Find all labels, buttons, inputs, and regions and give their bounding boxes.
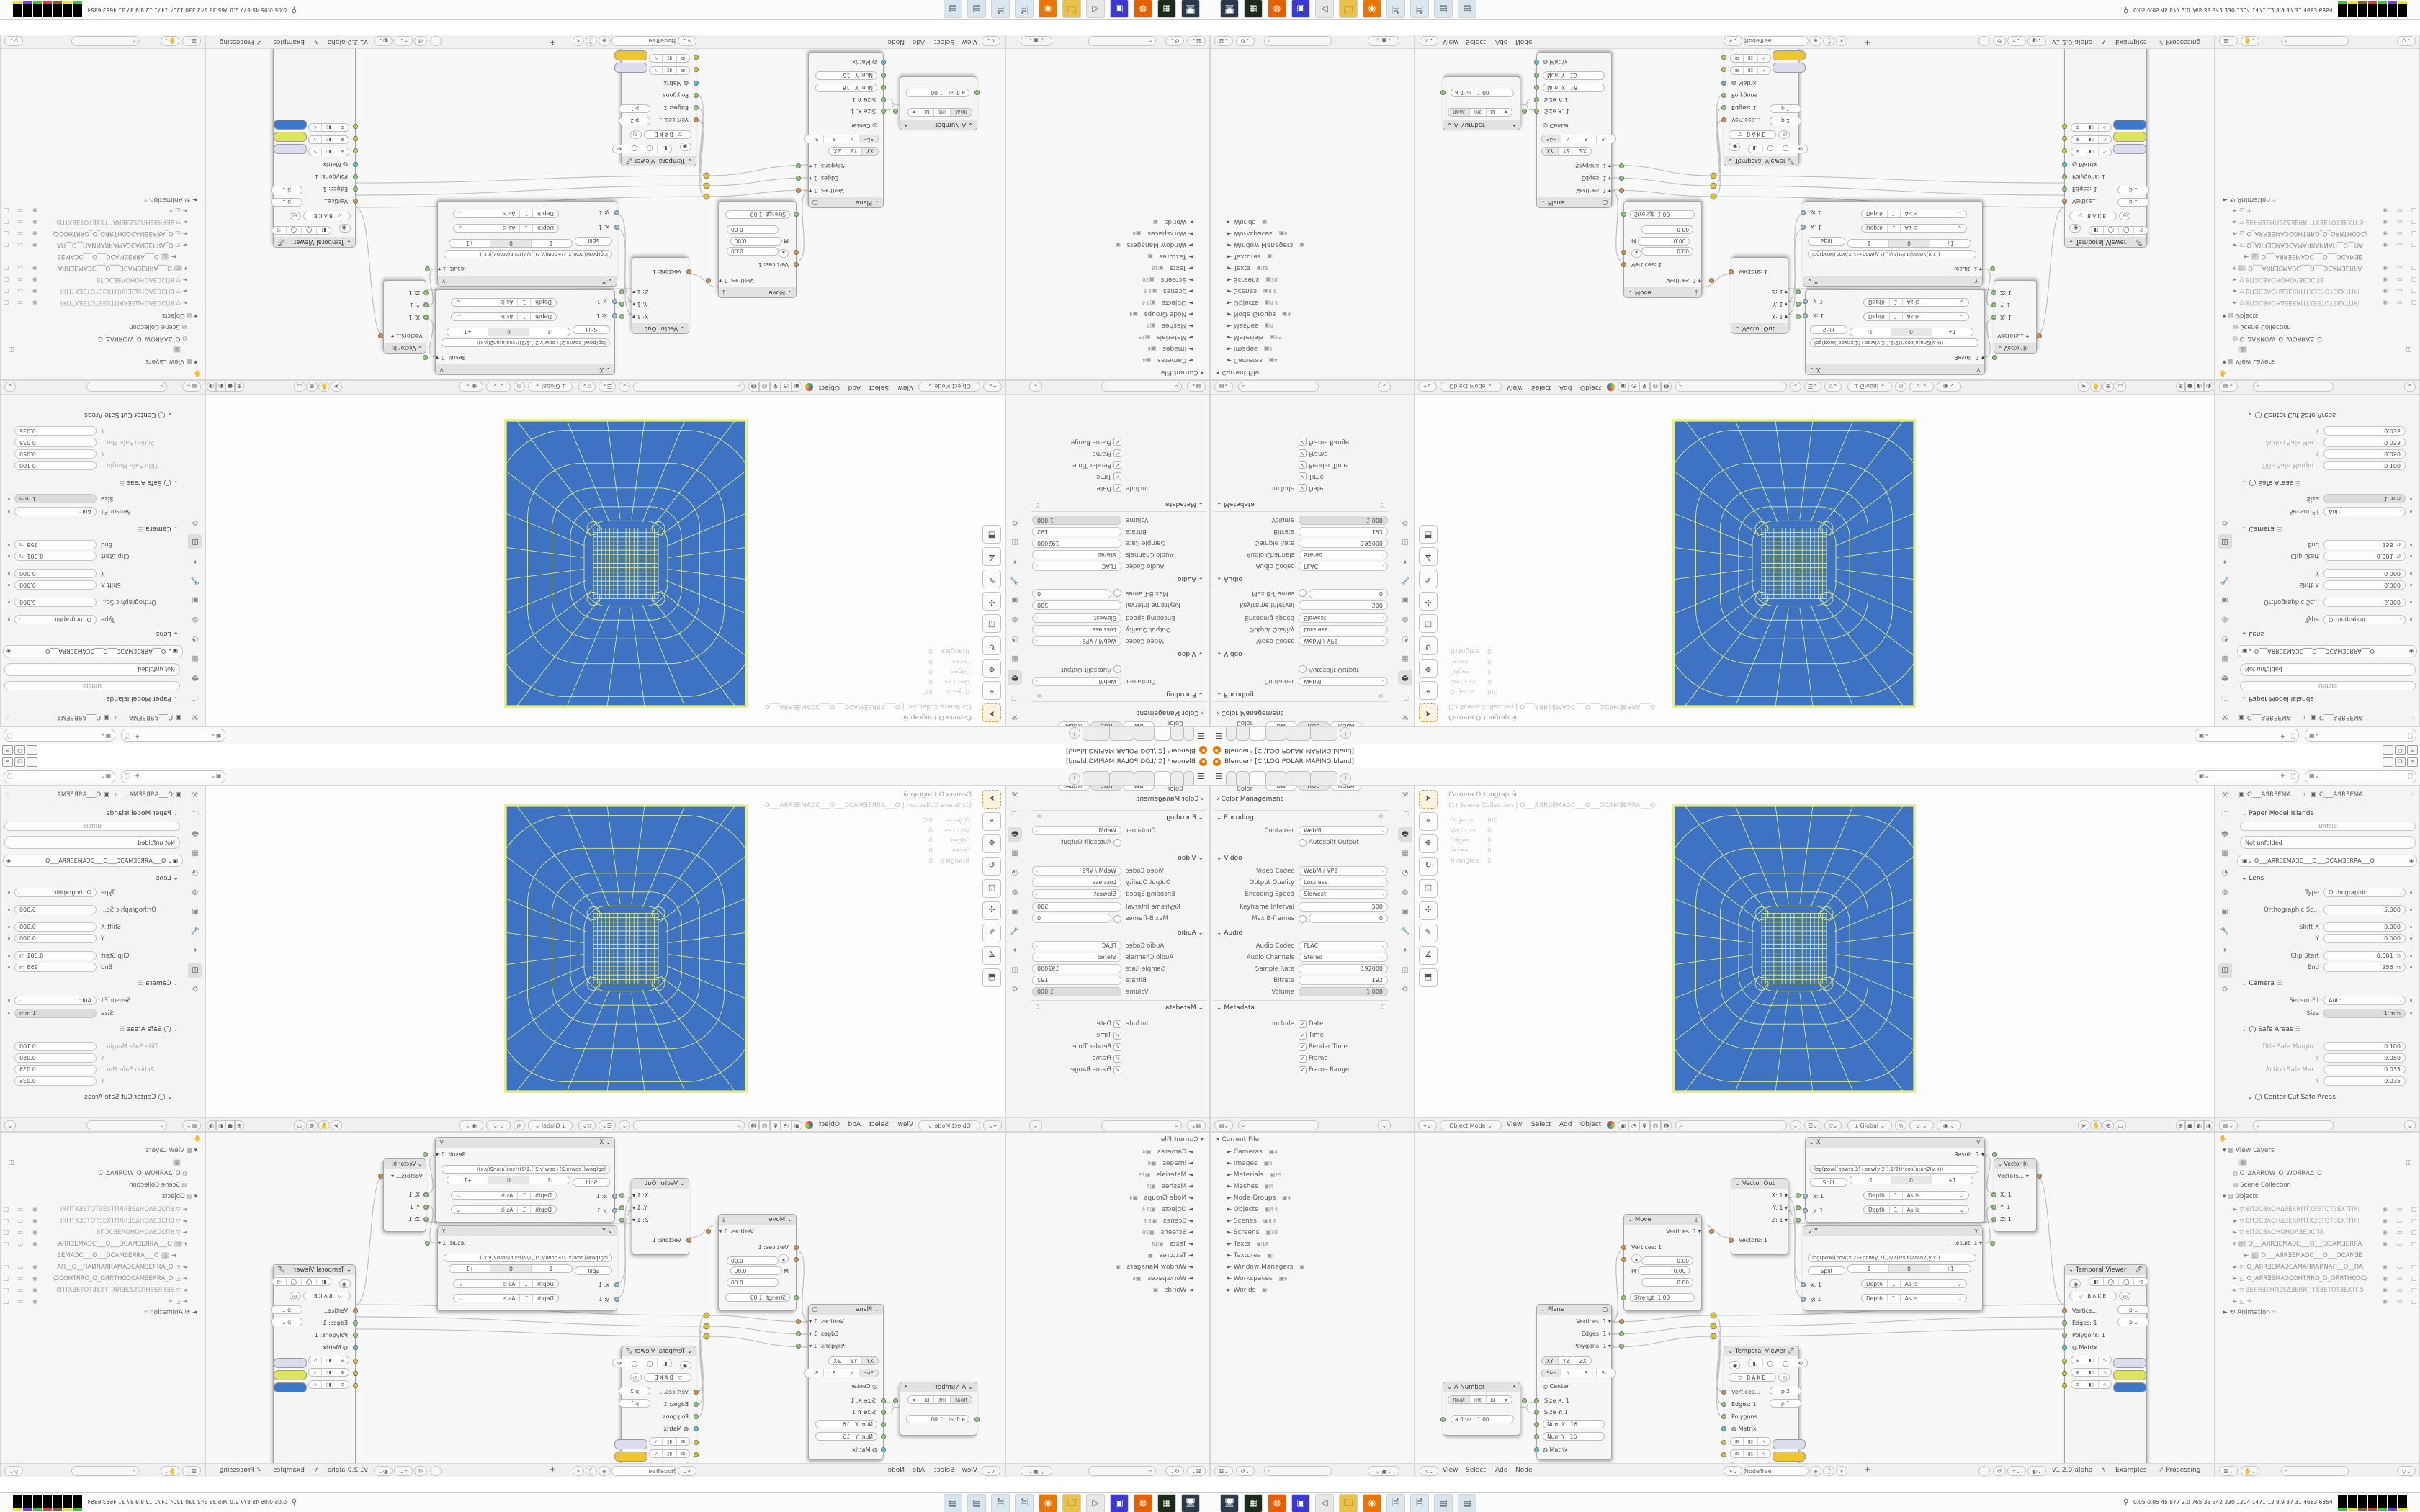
grid-icon[interactable]: ⊞: [336, 148, 349, 156]
grid-icon[interactable]: ⊞: [1731, 66, 1744, 74]
swatch-socket[interactable]: [2062, 136, 2067, 141]
safe-row-3-field[interactable]: 0.035: [2323, 426, 2406, 436]
reroute-node[interactable]: [704, 1323, 709, 1329]
disable-render-icon[interactable]: ◫: [2411, 1218, 2417, 1224]
disable-render-icon[interactable]: ◫: [3, 265, 9, 271]
disable-viewport-icon[interactable]: ▭: [2397, 1206, 2403, 1212]
viewport-chevron-icon[interactable]: ⌄: [1790, 1120, 1801, 1130]
taskbar-vice-c64-icon[interactable]: ▣: [1110, 1494, 1129, 1512]
camera-button[interactable]: ◎: [630, 130, 642, 139]
close-button[interactable]: ✕: [2, 745, 13, 755]
panel-encoding[interactable]: ⌄ Encoding: [1166, 814, 1204, 822]
outliner-object-row[interactable]: ► ◫ O_AЯRƎEMAƆCAMAЯRAИNAΠ__O__ΠA◉▭◫: [2233, 241, 2363, 248]
color-swatch[interactable]: [614, 1439, 647, 1449]
shading-solid-icon[interactable]: ●: [2185, 1120, 2195, 1130]
video-0-field[interactable]: WebM / VP9⌄: [1299, 636, 1388, 646]
editor-type-node-icon[interactable]: ∿⌄: [1420, 1466, 1438, 1476]
properties-tab-physics-icon[interactable]: ⚙: [1398, 515, 1412, 529]
viewport-menu-select[interactable]: Select: [869, 1121, 889, 1128]
new-view-layer-icon[interactable]: 🗋: [2408, 773, 2413, 783]
axis-yz-button[interactable]: YZ: [846, 1357, 862, 1365]
node-menu-node[interactable]: Node: [888, 1467, 905, 1474]
eye-toggle[interactable]: ◉: [339, 224, 351, 233]
node-x-expression[interactable]: ⌄ X ⋎ Result: 1 ▾ log(pow((pow(x,2)+pow(…: [435, 1137, 615, 1223]
fake-user-shield-icon[interactable]: ◈: [1810, 36, 1821, 46]
size-y-socket[interactable]: [881, 97, 886, 102]
bake-button[interactable]: ▽ BAKE: [2069, 212, 2117, 220]
grid-dropdown-icon[interactable]: ⌗⌄: [394, 36, 413, 46]
color-swatch[interactable]: [274, 145, 307, 155]
panel-safe-areas[interactable]: ⌄ ◯ Safe Areas ☰: [2241, 479, 2301, 486]
include-frame-checkbox[interactable]: ✓: [1299, 449, 1307, 457]
hide-eye-icon[interactable]: ◉: [32, 276, 37, 283]
select-box-tool[interactable]: ➤: [982, 790, 1001, 809]
hide-eye-icon[interactable]: ◉: [2383, 242, 2388, 248]
disable-viewport-icon[interactable]: ▭: [2397, 1229, 2403, 1236]
lens-row-5-field[interactable]: 256 m: [14, 540, 97, 549]
size-y-socket[interactable]: [1534, 1410, 1539, 1415]
vertices-output-socket[interactable]: [1619, 1319, 1624, 1324]
workspace-tab[interactable]: [1134, 771, 1155, 786]
workspace-tab[interactable]: [1134, 726, 1155, 741]
include-date-checkbox[interactable]: ✓: [1113, 1020, 1121, 1028]
int-button[interactable]: int: [933, 1396, 950, 1404]
file-outliner-item[interactable]: ► Window Managers ▣: [1227, 1264, 1305, 1271]
grid-icon[interactable]: ⊞: [2071, 135, 2084, 143]
presets-icon[interactable]: ☰: [1036, 690, 1042, 698]
swatch-socket[interactable]: [2062, 1359, 2067, 1364]
disable-render-icon[interactable]: ◫: [3, 1298, 9, 1305]
panel-paper-model[interactable]: ⌄ Paper Model Islands: [2241, 810, 2313, 817]
viewport-menu-object[interactable]: Object: [1580, 384, 1601, 391]
x-input-socket[interactable]: [1801, 1282, 1806, 1287]
lens-row-1-field[interactable]: 5.000: [2323, 905, 2406, 914]
matrix-input-socket[interactable]: [1721, 81, 1726, 86]
properties-tab-view-layer-icon[interactable]: ▦: [188, 651, 202, 665]
panel-metadata[interactable]: ⌄ Metadata: [1216, 1004, 1255, 1012]
view-layer-badge[interactable]: ▦◫: [2238, 1159, 2247, 1166]
panel-encoding[interactable]: ⌄ Encoding: [1166, 690, 1204, 698]
z-input-socket[interactable]: [1991, 290, 1996, 295]
measure-tool[interactable]: ∡: [982, 946, 1001, 965]
properties-tab-particles-icon[interactable]: ✦: [1398, 554, 1412, 568]
properties-tab-output-icon[interactable]: 🖶: [188, 670, 202, 685]
autosplit-checkbox[interactable]: [1113, 665, 1121, 673]
file-outliner-item[interactable]: ► Textures ▣: [1147, 253, 1193, 260]
x-input-socket[interactable]: [614, 1282, 619, 1287]
node-tree-name-field[interactable]: NodeTree: [611, 1466, 676, 1476]
y-output-socket[interactable]: [1796, 1205, 1801, 1210]
node-tree-name-field[interactable]: NodeTree: [611, 36, 676, 46]
node-vector-in[interactable]: ⌄ Vector In Vectors... ▾ X: 1 Y: 1 Z: 1: [383, 1158, 426, 1232]
overlay-toggle-icon[interactable]: ◔: [1628, 382, 1639, 392]
expression-field[interactable]: log(pow((pow(x,2)+pow(y,2)),1/2))*cos(at…: [1810, 338, 1978, 347]
color-swatch[interactable]: [274, 1370, 307, 1380]
gizmo-toggle-icon[interactable]: ⊕: [2102, 382, 2114, 392]
color-option-rgb[interactable]: RGB: [1298, 785, 1330, 791]
bake-button[interactable]: ▽ BAKE: [1729, 130, 1776, 139]
dropdown-icon[interactable]: ▾: [1500, 108, 1512, 116]
color-swatch[interactable]: [2113, 145, 2146, 155]
y-input-socket[interactable]: [1801, 210, 1806, 215]
node-header[interactable]: ⌄ Temporal Viewer 🖊: [2065, 237, 2146, 247]
outliner-object-row[interactable]: ► ◫ O_AЯRƎEMAƆCOHTЯRO_O_OЯRTHOƆC/◉▭◫: [53, 230, 187, 237]
outliner-object-row[interactable]: ► ▽ 8ΠƆCƎΛOHΔƎERRΠTXƎETOTƎEXTΠЯI◉▭◫: [60, 1218, 187, 1225]
taskbar-blender-icon[interactable]: ◉: [1039, 1494, 1057, 1512]
pin-icon[interactable]: ✈: [550, 1467, 555, 1474]
outliner-object-row[interactable]: ► ◫ O___AЯRƎEMAƆC___O___ƆCAMƎE: [58, 1252, 176, 1259]
axis-xy-button[interactable]: XY: [861, 1357, 878, 1365]
minimize-button[interactable]: –: [2383, 757, 2393, 767]
node-header[interactable]: ⌄ Temporal Viewer 🖊: [622, 1346, 696, 1356]
fake-user-shield-icon[interactable]: ◈: [599, 1466, 610, 1476]
polygons-input-socket[interactable]: [694, 93, 699, 98]
safe-row-0-field[interactable]: 0.100: [14, 1042, 97, 1051]
disable-viewport-icon[interactable]: ▭: [17, 219, 23, 225]
workspace-tab[interactable]: [1183, 726, 1194, 741]
editor-type-3d-icon[interactable]: ⌖⌄: [983, 1120, 1002, 1130]
disable-render-icon[interactable]: ◫: [3, 1264, 9, 1270]
vertices-input-socket[interactable]: [794, 1245, 799, 1250]
include-render-time-checkbox[interactable]: ✓: [1299, 461, 1307, 469]
file-outliner-item[interactable]: ► Workspaces ▣6: [1132, 1275, 1193, 1282]
safe-row-2-field[interactable]: 0.035: [14, 438, 97, 447]
loop-icon[interactable]: ⟲: [1793, 145, 1806, 153]
taskbar-notepad-icon[interactable]: 🗎: [1386, 0, 1405, 18]
taskbar-notepad-icon[interactable]: 🗎: [991, 1494, 1010, 1512]
processing-check[interactable]: ✓ Processing: [220, 38, 261, 45]
expression-field[interactable]: log(pow((pow(x,2)+pow(y,2)),1/2))*sin(at…: [444, 1254, 612, 1262]
properties-tab-object-icon[interactable]: ▣: [1008, 905, 1022, 919]
node-y-expression[interactable]: ⌄ Y ⋎ Result: 1 ▾ log(pow((pow(x,2)+pow(…: [437, 201, 617, 287]
overlay-toggle-icon[interactable]: ✾: [770, 382, 781, 392]
properties-tab-modifiers-icon[interactable]: 🔧: [1008, 924, 1022, 939]
container-field[interactable]: WebM⌄: [1299, 826, 1388, 835]
viewport-filter-icon[interactable]: ▽⌄: [1824, 382, 1842, 392]
z-output-socket[interactable]: [1796, 289, 1801, 294]
properties-tab-output-icon[interactable]: 🖶: [2218, 827, 2232, 842]
properties-tab-output-icon[interactable]: 🖶: [1398, 827, 1412, 842]
video-0-field[interactable]: WebM / VP9⌄: [1032, 636, 1121, 646]
properties-tab-modifiers-icon[interactable]: 🔧: [1398, 924, 1412, 939]
dropdown-icon[interactable]: ▾: [908, 108, 920, 116]
swatch-socket[interactable]: [694, 1440, 699, 1445]
bars-icon[interactable]: ▮▯: [2084, 148, 2099, 156]
editor-type-outliner-icon[interactable]: ☱⌄: [1187, 36, 1206, 46]
reroute-node[interactable]: [1711, 183, 1716, 189]
bars-icon[interactable]: ▮▯: [321, 1369, 336, 1377]
viewport-menu-object[interactable]: Object: [819, 1121, 840, 1128]
curve-icon[interactable]: ∿: [309, 135, 321, 143]
lens-row-3-field[interactable]: 0.000: [14, 934, 97, 943]
measure-tool[interactable]: ∡: [1419, 946, 1438, 965]
lens-row-5-field[interactable]: 256 m: [14, 963, 97, 972]
curve-icon[interactable]: ∿: [650, 66, 662, 74]
grid-icon[interactable]: ⊞: [2071, 1381, 2084, 1389]
annotate-tool[interactable]: ✎: [1419, 924, 1438, 942]
blank-toggle-icon[interactable]: [1978, 1466, 1990, 1476]
gizmo-toggle-icon[interactable]: ▭: [294, 1120, 305, 1130]
menu-hamburger-icon[interactable]: ☰: [1215, 731, 1222, 740]
n-tab[interactable]: N...: [841, 1369, 859, 1377]
properties-tab-object-icon[interactable]: ▣: [1398, 905, 1412, 919]
matrix-socket[interactable]: [881, 1447, 886, 1452]
video-4-field[interactable]: 0: [1309, 914, 1388, 923]
properties-tab-render-icon[interactable]: 🗀: [1008, 690, 1022, 704]
copies-icon[interactable]: 🗋: [1823, 36, 1834, 46]
workspace-tab[interactable]: [1154, 771, 1171, 786]
vertices-input-socket[interactable]: [353, 199, 358, 204]
move-tool[interactable]: ✥: [1419, 659, 1438, 678]
taskbar-notepad-icon[interactable]: 🗎: [991, 0, 1010, 18]
new-scene-icon[interactable]: 🗋: [2291, 773, 2295, 783]
overlay-toggle-icon[interactable]: 🖶: [1661, 382, 1672, 392]
file-outliner-item[interactable]: ► Images ▣6: [1147, 1160, 1193, 1167]
taskbar-vice-c64-icon[interactable]: ▣: [1110, 0, 1129, 18]
editor-type-3d-icon[interactable]: ⌖⌄: [983, 382, 1002, 392]
file-outliner-item[interactable]: ► Objects ▣4 4: [1142, 1206, 1193, 1213]
vertices-input-socket[interactable]: [1721, 117, 1726, 122]
result-output-socket[interactable]: [423, 355, 428, 360]
hide-eye-icon[interactable]: ◉: [32, 288, 37, 294]
viewport-menu-add[interactable]: Add: [848, 384, 861, 391]
outliner-filter-icon[interactable]: ▽⌄: [4, 36, 23, 46]
y-input-socket[interactable]: [612, 299, 617, 304]
y-input-socket[interactable]: [1801, 1297, 1806, 1302]
lens-row-1-field[interactable]: 5.000: [2323, 598, 2406, 607]
panel-paper-model[interactable]: ⌄ Paper Model Islands: [107, 810, 179, 817]
audio-1-field[interactable]: Stereo⌄: [1032, 550, 1121, 559]
examples-menu[interactable]: Examples: [2115, 1467, 2147, 1474]
outliner-display-mode-icon[interactable]: ✋⌄: [161, 1466, 179, 1476]
node-move[interactable]: ⌄ Move ⤓ Vertices: 1 ▾ Vertices: 1 ▴0.00…: [1623, 1214, 1702, 1311]
outliner-object-row[interactable]: ► ▽ 8ΠƆCƎΛOHΔƎERRΠTXƎETOTƎEXTΠЯI◉▭◫: [60, 299, 187, 306]
outliner-object-row[interactable]: ► ◫ O___AЯRƎEMAƆC___O___ƆCAMƎE: [2244, 253, 2362, 260]
hide-eye-icon[interactable]: ◉: [2383, 276, 2388, 283]
circle-icon[interactable]: ◯: [1763, 1359, 1778, 1367]
safe-row-1-field[interactable]: 0.050: [2323, 1053, 2406, 1063]
size-x-socket[interactable]: [1534, 109, 1539, 114]
color-swatch[interactable]: [2113, 1370, 2146, 1380]
disable-viewport-icon[interactable]: ▭: [17, 1287, 23, 1293]
axis-zx-button[interactable]: ZX: [1574, 1357, 1590, 1365]
solid-icon[interactable]: ◧: [1749, 145, 1763, 153]
workspace-tab[interactable]: [1226, 771, 1237, 786]
viewport-list-icon[interactable]: ☰⌄: [599, 382, 616, 392]
pin-scene-icon[interactable]: ✈: [135, 733, 140, 739]
lens-row-5-field[interactable]: 256 m: [2323, 963, 2406, 972]
disable-viewport-icon[interactable]: ▭: [2397, 207, 2403, 214]
viewport-filter-icon[interactable]: ▽⌄: [578, 382, 596, 392]
properties-search-input[interactable]: ⌕: [86, 382, 167, 392]
menu-hamburger-icon[interactable]: ☰: [1198, 772, 1205, 781]
audio-3-field[interactable]: 192: [1299, 976, 1388, 985]
overlay-toggle-icon[interactable]: ✾: [770, 1120, 781, 1130]
taskbar-device-manager-icon[interactable]: ▦: [1244, 0, 1263, 18]
processing-check[interactable]: ✓ Processing: [220, 1467, 261, 1474]
panel-lens[interactable]: ⌄ Lens: [156, 875, 179, 882]
gizmo-toggle-icon[interactable]: ⊕: [2102, 1120, 2114, 1130]
disable-render-icon[interactable]: ◫: [2411, 1298, 2417, 1305]
shading-solid-icon[interactable]: ●: [225, 382, 235, 392]
curve-icon[interactable]: ∿: [2099, 1381, 2111, 1389]
swatch-socket[interactable]: [353, 136, 358, 141]
n-tab[interactable]: N...: [1561, 1369, 1579, 1377]
color-option-rgba[interactable]: RGBA: [1330, 785, 1362, 791]
x-input-socket[interactable]: [1803, 1194, 1808, 1199]
editor-type-outliner-icon[interactable]: ☱⌄: [2219, 36, 2238, 46]
taskbar-notepad-icon[interactable]: 🗎: [1015, 0, 1034, 18]
measure-tool[interactable]: ∡: [1419, 547, 1438, 566]
unfold-button[interactable]: Unfold: [4, 822, 180, 831]
viewport-menu-select[interactable]: Select: [869, 384, 889, 391]
properties-tab-scene-icon[interactable]: ◔: [188, 866, 202, 881]
properties-tab-physics-icon[interactable]: ⚙: [1008, 983, 1022, 997]
mode-dropdown[interactable]: Object Mode ⌄: [918, 1120, 980, 1130]
video-1-field[interactable]: Lossless⌄: [1299, 625, 1388, 634]
outliner-object-row[interactable]: ► ▽ 8ΠƆCƎΛOHΔƎERRΠTXƎETOTƎEXTΠЯI◉▭◫: [60, 287, 187, 294]
eye-toggle[interactable]: ◉: [2069, 224, 2081, 233]
properties-tab-tool-icon[interactable]: ⚒: [2218, 788, 2232, 803]
taskbar-volume-icon[interactable]: ◁: [1315, 0, 1334, 18]
shield-fake-user-icon[interactable]: ◈: [2409, 855, 2414, 867]
taskbar-firefox-icon[interactable]: ◍: [1134, 0, 1152, 18]
matrix-input-socket[interactable]: [694, 1426, 699, 1431]
node-menu-view[interactable]: View: [962, 1467, 977, 1474]
editor-type-outliner-icon[interactable]: ☱⌄: [1214, 36, 1233, 46]
int-button[interactable]: int: [933, 108, 950, 116]
x-input-socket[interactable]: [423, 315, 429, 320]
overlay-toggle-icon[interactable]: ◍: [1650, 1120, 1661, 1130]
lens-row-2-field[interactable]: 0.000: [14, 580, 97, 590]
file-outliner-item[interactable]: ► Node Groups ▣4: [1227, 310, 1291, 318]
x-input-socket[interactable]: [1991, 315, 1996, 320]
taskbar-calculator-icon[interactable]: ▤: [967, 0, 986, 18]
shading-wireframe-icon[interactable]: ⊞: [235, 382, 244, 392]
grid-icon[interactable]: ⊞: [2071, 123, 2084, 131]
file-outliner-item[interactable]: ► Scenes ▣8 8: [1227, 1218, 1277, 1225]
hide-eye-icon[interactable]: ◉: [2383, 1218, 2388, 1224]
add-workspace-button[interactable]: +: [1069, 773, 1080, 785]
panel-audio[interactable]: ⌄ Audio: [1178, 575, 1204, 582]
viewport-menu-object[interactable]: Object: [1580, 1121, 1601, 1128]
add-workspace-button[interactable]: +: [1340, 773, 1351, 785]
editor-type-node-icon[interactable]: ∿⌄: [982, 1466, 1000, 1476]
select-box-tool[interactable]: ➤: [1419, 703, 1438, 722]
include-date-checkbox[interactable]: ✓: [1113, 484, 1121, 492]
breadcrumb-object[interactable]: O___AЯRƎEMA...: [123, 791, 173, 798]
panel-encoding[interactable]: ⌄ Encoding: [1216, 690, 1254, 698]
processing-check[interactable]: ✓ Processing: [2159, 38, 2200, 45]
num-x-socket[interactable]: [1534, 1422, 1539, 1427]
world-row[interactable]: ◍ O_ΔΛЯROW_O_WOЯRΛΔ_O: [98, 1170, 187, 1177]
blank-toggle-icon[interactable]: [1978, 36, 1990, 46]
audio-3-field[interactable]: 192: [1299, 527, 1388, 536]
workspace-tab[interactable]: [1249, 771, 1266, 786]
lens-row-3-field[interactable]: 0.000: [2323, 569, 2406, 578]
properties-tab-tool-icon[interactable]: ⚒: [188, 788, 202, 803]
viewport-list-icon[interactable]: ☰⌄: [599, 1120, 616, 1130]
video-4-toggle[interactable]: [1113, 915, 1121, 923]
solid-icon[interactable]: ◧: [1749, 1359, 1763, 1367]
shading-material-icon[interactable]: ◐: [216, 1120, 225, 1130]
disable-render-icon[interactable]: ◫: [3, 1206, 9, 1212]
unfold-button[interactable]: Unfold: [4, 681, 180, 690]
curve-icon[interactable]: ∿: [650, 54, 662, 62]
num-x-socket[interactable]: [881, 1422, 886, 1427]
pin-scene-icon[interactable]: ✈: [135, 773, 140, 779]
polygons-output-socket[interactable]: [1619, 1344, 1624, 1349]
breadcrumb-data[interactable]: O___AЯRƎEMA...: [2319, 714, 2369, 721]
polygons-input-socket[interactable]: [1721, 1414, 1726, 1419]
maximize-button[interactable]: ❐: [2395, 757, 2406, 767]
outliner-object-row[interactable]: ► ▽ 8ΠƆCƎΛOHΔƎERRΠTXƎETOTƎEXTΠЯI◉▭◫: [60, 1206, 187, 1213]
disable-render-icon[interactable]: ◫: [3, 1218, 9, 1224]
swatch-socket[interactable]: [694, 67, 699, 72]
new-view-layer-icon[interactable]: 🗋: [2408, 729, 2413, 739]
panel-camera[interactable]: ⌄ Camera ☰: [2241, 980, 2282, 987]
viewport-search-input[interactable]: ⌕: [1675, 1120, 1787, 1130]
random-icon[interactable]: ⚄: [1487, 108, 1501, 116]
size-tab[interactable]: Size: [1542, 1369, 1561, 1377]
outliner-filter-icon[interactable]: ▽⌄: [4, 1466, 23, 1476]
properties-tab-physics-icon[interactable]: ⚙: [2218, 515, 2232, 529]
unlink-icon[interactable]: ✕: [1836, 36, 1847, 46]
include-frame-checkbox[interactable]: ✓: [1113, 449, 1121, 457]
audio-0-field[interactable]: FLAC⌄: [1299, 941, 1388, 950]
outliner-mode-icon[interactable]: ✋: [193, 369, 201, 377]
edges-input-socket[interactable]: [694, 1402, 699, 1407]
safe-row-0-field[interactable]: 0.100: [14, 461, 97, 470]
node-vector-out[interactable]: ⌄ Vector Out X: 1 ▾ Y: 1 ▾ Z: 1 ▾ Vector…: [632, 1178, 689, 1255]
audio-3-field[interactable]: 192: [1032, 527, 1121, 536]
input-socket[interactable]: [1440, 1417, 1446, 1422]
circle2-icon[interactable]: ◯: [286, 1278, 301, 1286]
rotate-tool[interactable]: ↻: [982, 636, 1001, 655]
matrix-socket[interactable]: [881, 60, 886, 65]
dropdown-icon[interactable]: ▾: [908, 1396, 920, 1404]
properties-tab-object-icon[interactable]: ▣: [1008, 593, 1022, 607]
circle-icon[interactable]: ◯: [2104, 226, 2119, 234]
properties-tab-render-icon[interactable]: 🗀: [188, 808, 202, 822]
properties-tab-render-icon[interactable]: 🗀: [1008, 808, 1022, 822]
node-move[interactable]: ⌄ Move ⤓ Vertices: 1 ▾ Vertices: 1 ▴0.00…: [718, 1214, 797, 1311]
panel-video[interactable]: ⌄ Video: [1216, 650, 1242, 657]
x-output-socket[interactable]: [1796, 314, 1801, 319]
file-outliner-item[interactable]: ► Texts ▣18: [1152, 1241, 1193, 1248]
video-1-field[interactable]: Lossless⌄: [1299, 878, 1388, 887]
grid-icon[interactable]: ⊞: [1731, 54, 1744, 62]
shading-material-icon[interactable]: ◐: [2195, 1120, 2204, 1130]
color-swatch[interactable]: [274, 1358, 307, 1368]
hide-eye-icon[interactable]: ◉: [2383, 219, 2388, 225]
edges-input-socket[interactable]: [2062, 186, 2067, 192]
proportional-edit-icon[interactable]: ◉ ⌄: [1937, 1120, 1961, 1130]
properties-chevron-icon[interactable]: ⌄: [4, 382, 16, 392]
include-time-checkbox[interactable]: ✓: [1113, 472, 1121, 480]
tree-type-icon[interactable]: ∿⌄: [1724, 36, 1742, 46]
camera-datablock-field[interactable]: ▣⌄ O___AЯRƎEMAƆC___O___ƆCAMƎERRA___O ◈: [3, 855, 183, 867]
outliner-object-row[interactable]: ▾ ◫ O___AЯRƎEMAƆC___O___ƆCAMƎERRA◉▭◫: [2233, 1241, 2362, 1248]
axis-xy-button[interactable]: XY: [1542, 1357, 1559, 1365]
size-tab[interactable]: Size: [859, 135, 878, 143]
video-3-field[interactable]: 500: [1299, 600, 1388, 610]
eye-toggle[interactable]: ◉: [680, 1361, 691, 1369]
add-cube-tool[interactable]: ⬒: [982, 525, 1001, 544]
curve-icon[interactable]: ∿: [1758, 1450, 1770, 1458]
color-swatch[interactable]: [274, 120, 307, 130]
lens-row-0-field[interactable]: Orthographic⌄: [2323, 615, 2406, 624]
